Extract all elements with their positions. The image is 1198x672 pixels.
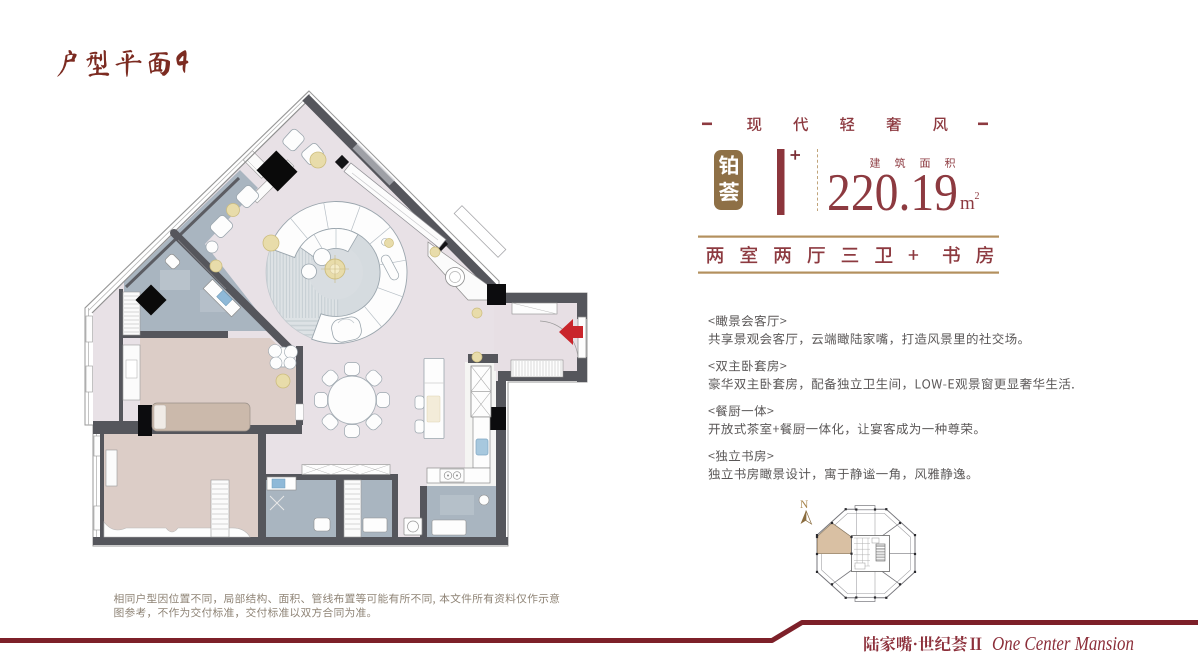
svg-text:2: 2 <box>975 191 980 202</box>
svg-text:N: N <box>800 499 809 511</box>
svg-text:m: m <box>960 193 975 214</box>
svg-text:One Center Mansion: One Center Mansion <box>992 633 1134 655</box>
svg-text:220.19: 220.19 <box>827 164 958 222</box>
